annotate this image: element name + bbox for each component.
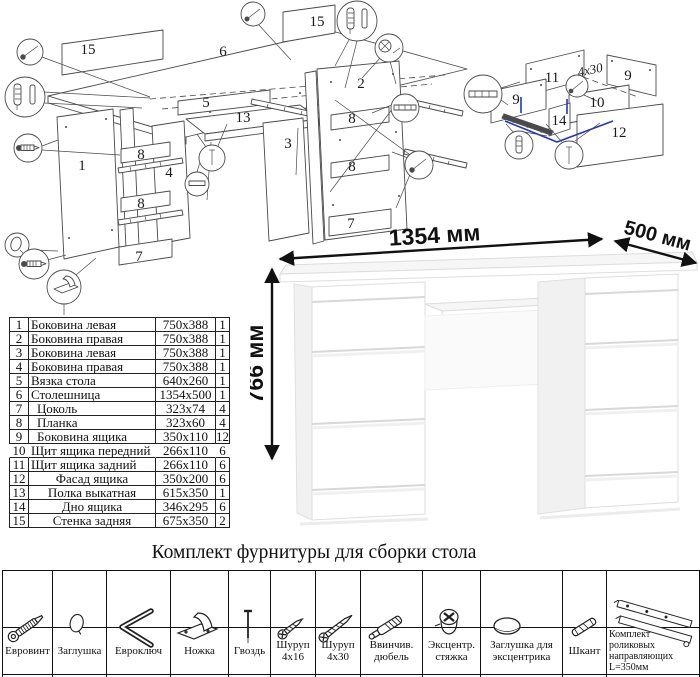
part-label: 15 [310, 14, 325, 30]
parts-list-table: 1Боковина левая750x3881 2Боковина правая… [9, 317, 230, 528]
part-size: 346x295 [156, 500, 216, 514]
cam-cap-icon [481, 600, 533, 628]
callout-confirmat-screw-icon [405, 151, 433, 179]
part-size: 750x388 [156, 332, 216, 346]
callout-screw-vertical-icon [199, 145, 225, 171]
part-size: 675x350 [156, 514, 216, 528]
table-row: 5Вязка стола640x2601 [9, 374, 230, 388]
cap-icon [53, 600, 101, 628]
part-label: 13 [236, 110, 251, 126]
callout-foot-nail-icon [47, 270, 81, 315]
hardware-icon-cell [53, 571, 107, 628]
part-size: 323x74 [156, 402, 216, 416]
callout-confirmat-screw-icon [19, 249, 49, 279]
hardware-icons-row [3, 571, 700, 628]
white-desk-render [280, 252, 697, 524]
part-size: 266x110 [156, 444, 216, 458]
foot-icon [171, 600, 223, 628]
table-row: 10Щит ящика передний266x1106 [9, 444, 230, 458]
part-num: 12 [9, 472, 29, 486]
part-qty: 6 [216, 500, 230, 514]
part-label: 9 [512, 92, 520, 108]
part-qty: 1 [216, 346, 230, 360]
part-qty: 1 [216, 388, 230, 402]
part-num: 5 [9, 374, 29, 388]
part-name: Планка [29, 416, 156, 430]
part-name: Столешница [29, 388, 156, 402]
callout-confirmat-screw-icon [241, 2, 265, 26]
part-label: 8 [137, 196, 145, 212]
part-size: 750x388 [156, 346, 216, 360]
part-num: 13 [9, 486, 29, 500]
part-qty: 1 [216, 360, 230, 374]
part-name: Щит ящика передний [29, 444, 156, 458]
part-qty: 12 [216, 430, 230, 444]
screw-small-icon [271, 600, 313, 628]
threaded-dowel-icon [361, 600, 413, 628]
part-name: Боковина правая [29, 332, 156, 346]
nail-icon [229, 600, 267, 628]
part-label: 4 [165, 165, 173, 181]
part-size: 640x260 [156, 374, 216, 388]
part-name: Боковина левая [29, 317, 156, 332]
part-qty: 1 [216, 486, 230, 500]
part-num: 1 [9, 317, 29, 332]
hardware-icon-cell [361, 571, 423, 628]
table-row: 13Полка выкатная615x3501 [9, 486, 230, 500]
table-row: 8Планка323x604 [9, 416, 230, 430]
part-label: 2 [357, 76, 365, 92]
part-name: Цоколь [29, 402, 156, 416]
width-dimension-label: 1354 мм [388, 219, 481, 251]
callout-drawer-slide-icon [391, 94, 419, 122]
drawer-assembly-drawing: 11 9 9 10 14 12 4x30 [464, 50, 663, 169]
table-row: 1Боковина левая750x3881 [9, 317, 230, 332]
confirmat-screw-icon [3, 600, 51, 628]
height-dimension-label: 766 мм [250, 325, 268, 404]
table-row: 2Боковина правая750x3881 [9, 332, 230, 346]
wood-dowel-icon [563, 600, 605, 628]
callout-confirmat-screw-icon [14, 134, 42, 162]
depth-dimension-label: 500 мм [622, 217, 694, 256]
part-size: 266x110 [156, 458, 216, 472]
part-num: 6 [9, 388, 29, 402]
part-size: 750x388 [156, 360, 216, 374]
hardware-kit-title: Комплект фурнитуры для сборки стола [0, 542, 628, 564]
drawer-slide-icon [607, 600, 697, 628]
part-name: Боковина ящика [29, 430, 156, 444]
callout-drawer-slide-icon [464, 75, 502, 113]
part-num: 2 [9, 332, 29, 346]
part-size: 615x350 [156, 486, 216, 500]
part-size: 350x200 [156, 472, 216, 486]
table-row: 6Столешница1354x5001 [9, 388, 230, 402]
part-size: 350x110 [156, 430, 216, 444]
part-label: 6 [219, 44, 227, 60]
hardware-icon-cell [3, 571, 53, 628]
part-num: 10 [9, 444, 29, 458]
desk-dimension-view: 1354 мм 500 мм 766 мм [250, 212, 700, 547]
table-row: 3Боковина левая750x3881 [9, 346, 230, 360]
part-label: 8 [348, 111, 356, 127]
callout-threaded-dowel-icon [505, 131, 533, 159]
part-label: 8 [348, 159, 356, 175]
hardware-kit-table: Евровинт Заглушка Евроключ Ножка Гвоздь … [2, 570, 700, 677]
part-size: 1354x500 [156, 388, 216, 402]
part-label: 1 [78, 158, 86, 174]
part-label: 5 [202, 95, 210, 111]
part-qty: 6 [216, 458, 230, 472]
hardware-icon-cell [107, 571, 171, 628]
hardware-icon-cell [607, 571, 700, 628]
part-num: 7 [9, 402, 29, 416]
part-num: 15 [9, 514, 29, 528]
part-num: 11 [9, 458, 29, 472]
part-label: 3 [284, 136, 292, 152]
hardware-icon-cell [271, 571, 316, 628]
part-qty: 6 [216, 444, 230, 458]
hardware-icon-cell [171, 571, 229, 628]
table-row: 14Дно ящика346x2956 [9, 500, 230, 514]
part-name: Фасад ящика [29, 472, 156, 486]
part-name: Дно ящика [29, 500, 156, 514]
part-label: 10 [590, 95, 605, 111]
table-row: 4Боковина правая750x3881 [9, 360, 230, 374]
part-num: 4 [9, 360, 29, 374]
part-label: 8 [137, 147, 145, 163]
part-num: 8 [9, 416, 29, 430]
part-qty: 1 [216, 332, 230, 346]
assembly-instruction-page: 15 6 15 1 8 4 8 7 5 13 3 2 8 8 7 [0, 0, 700, 677]
part-qty: 6 [216, 472, 230, 486]
hardware-icon-cell [423, 571, 481, 628]
callout-slide-profile-icon [185, 172, 209, 196]
table-row: 7Цоколь323x744 [9, 402, 230, 416]
hex-key-icon [107, 600, 163, 628]
part-qty: 4 [216, 416, 230, 430]
table-row: 15Стенка задняя675x3502 [9, 514, 230, 528]
part-num: 14 [9, 500, 29, 514]
table-row: 11Щит ящика задний266x1106 [9, 458, 230, 472]
part-name: Боковина правая [29, 360, 156, 374]
part-label: 15 [81, 42, 96, 58]
part-qty: 1 [216, 317, 230, 332]
part-name: Вязка стола [29, 374, 156, 388]
part-qty: 4 [216, 402, 230, 416]
part-qty: 1 [216, 374, 230, 388]
part-label: 7 [135, 249, 143, 265]
part-num: 9 [9, 430, 29, 444]
part-label: 11 [545, 70, 559, 86]
cam-lock-icon [423, 600, 475, 628]
screw-long-icon [316, 600, 358, 628]
hardware-icon-cell [481, 571, 563, 628]
table-row: 9Боковина ящика350x11012 [9, 430, 230, 444]
part-label: 12 [612, 125, 627, 141]
part-name: Стенка задняя [29, 514, 156, 528]
hardware-icon-cell [316, 571, 361, 628]
part-num: 3 [9, 346, 29, 360]
callout-dowel-pin-pair-icon [5, 77, 45, 117]
part-label: 14 [552, 113, 568, 129]
callout-cam-lock-screw-icon [375, 34, 403, 62]
table-row: 12Фасад ящика350x2006 [9, 472, 230, 486]
part-label: 9 [624, 68, 632, 84]
callout-dowel-pin-pair-icon [337, 1, 377, 41]
part-size: 750x388 [156, 317, 216, 332]
hardware-icon-cell [563, 571, 607, 628]
hardware-icon-cell [229, 571, 271, 628]
callout-nail-icon [555, 141, 583, 169]
callout-confirmat-screw-icon [17, 39, 43, 65]
part-name: Полка выкатная [29, 486, 156, 500]
part-name: Щит ящика задний [29, 458, 156, 472]
part-name: Боковина левая [29, 346, 156, 360]
part-qty: 2 [216, 514, 230, 528]
part-size: 323x60 [156, 416, 216, 430]
